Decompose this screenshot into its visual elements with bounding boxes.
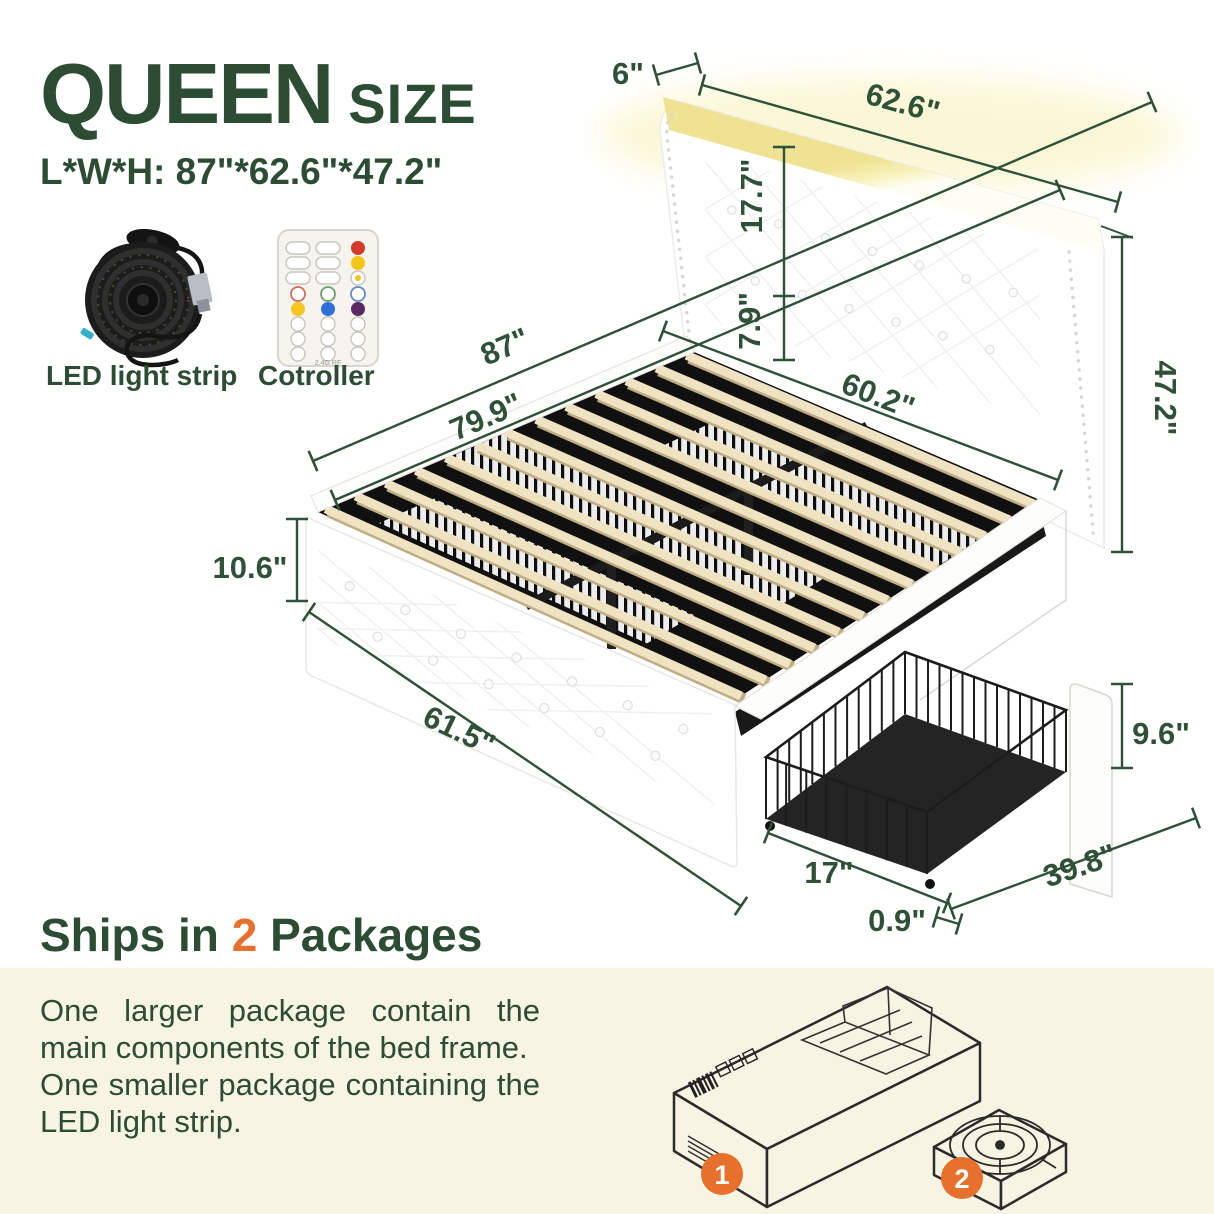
drawer-wheel	[925, 879, 935, 889]
page-title-suffix: SIZE	[348, 76, 476, 132]
overall-dimensions-text: L*W*H: 87"*62.6"*47.2"	[40, 151, 477, 193]
dim-total-length: 87"	[475, 321, 534, 373]
strip-end-tape	[80, 327, 95, 340]
package-2-number: 2	[954, 1164, 969, 1194]
shipping-heading-prefix: Ships in	[40, 909, 219, 961]
led-strip-label: LED light strip	[46, 360, 237, 392]
dim-drawer-basket-depth: 17"	[804, 855, 853, 890]
shipping-paragraph-1: One larger package contain the main comp…	[40, 992, 540, 1066]
dim-headboard-lower: 7.9"	[732, 292, 767, 350]
dim-drawer-front-height: 9.6"	[1132, 716, 1190, 751]
dim-drawer-panel-thickness: 0.9"	[868, 903, 926, 938]
package-1-number: 1	[714, 1160, 729, 1190]
infographic-canvas: 6" 62.6" 17.7" 7.9" 47.2" 87" 79.9" 60.2…	[0, 0, 1214, 1214]
drawer-wheel	[765, 821, 775, 831]
dim-headboard-upper: 17.7"	[734, 158, 769, 233]
power-button	[351, 241, 365, 255]
shipping-heading: Ships in 2 Packages	[40, 908, 482, 962]
dim-total-height: 47.2"	[1148, 360, 1183, 435]
shipping-paragraph-2: One smaller package containing the LED l…	[40, 1066, 540, 1140]
page-title: QUEEN	[40, 52, 332, 137]
shipping-heading-suffix: Packages	[270, 909, 482, 961]
dim-top-depth: 6"	[612, 56, 644, 91]
shipping-description: One larger package contain the main comp…	[40, 992, 540, 1140]
dim-footboard-height: 10.6"	[212, 550, 287, 585]
led-strip-image	[38, 222, 248, 372]
brightness-button	[351, 256, 365, 270]
controller-label: Cotroller	[258, 360, 375, 392]
shipping-package-count: 2	[232, 909, 258, 961]
header: QUEEN SIZE L*W*H: 87"*62.6"*47.2"	[40, 52, 477, 193]
remote-controller-image: 2.4G RF	[276, 228, 381, 370]
package-boxes-illustration: 1 2	[620, 975, 1214, 1214]
